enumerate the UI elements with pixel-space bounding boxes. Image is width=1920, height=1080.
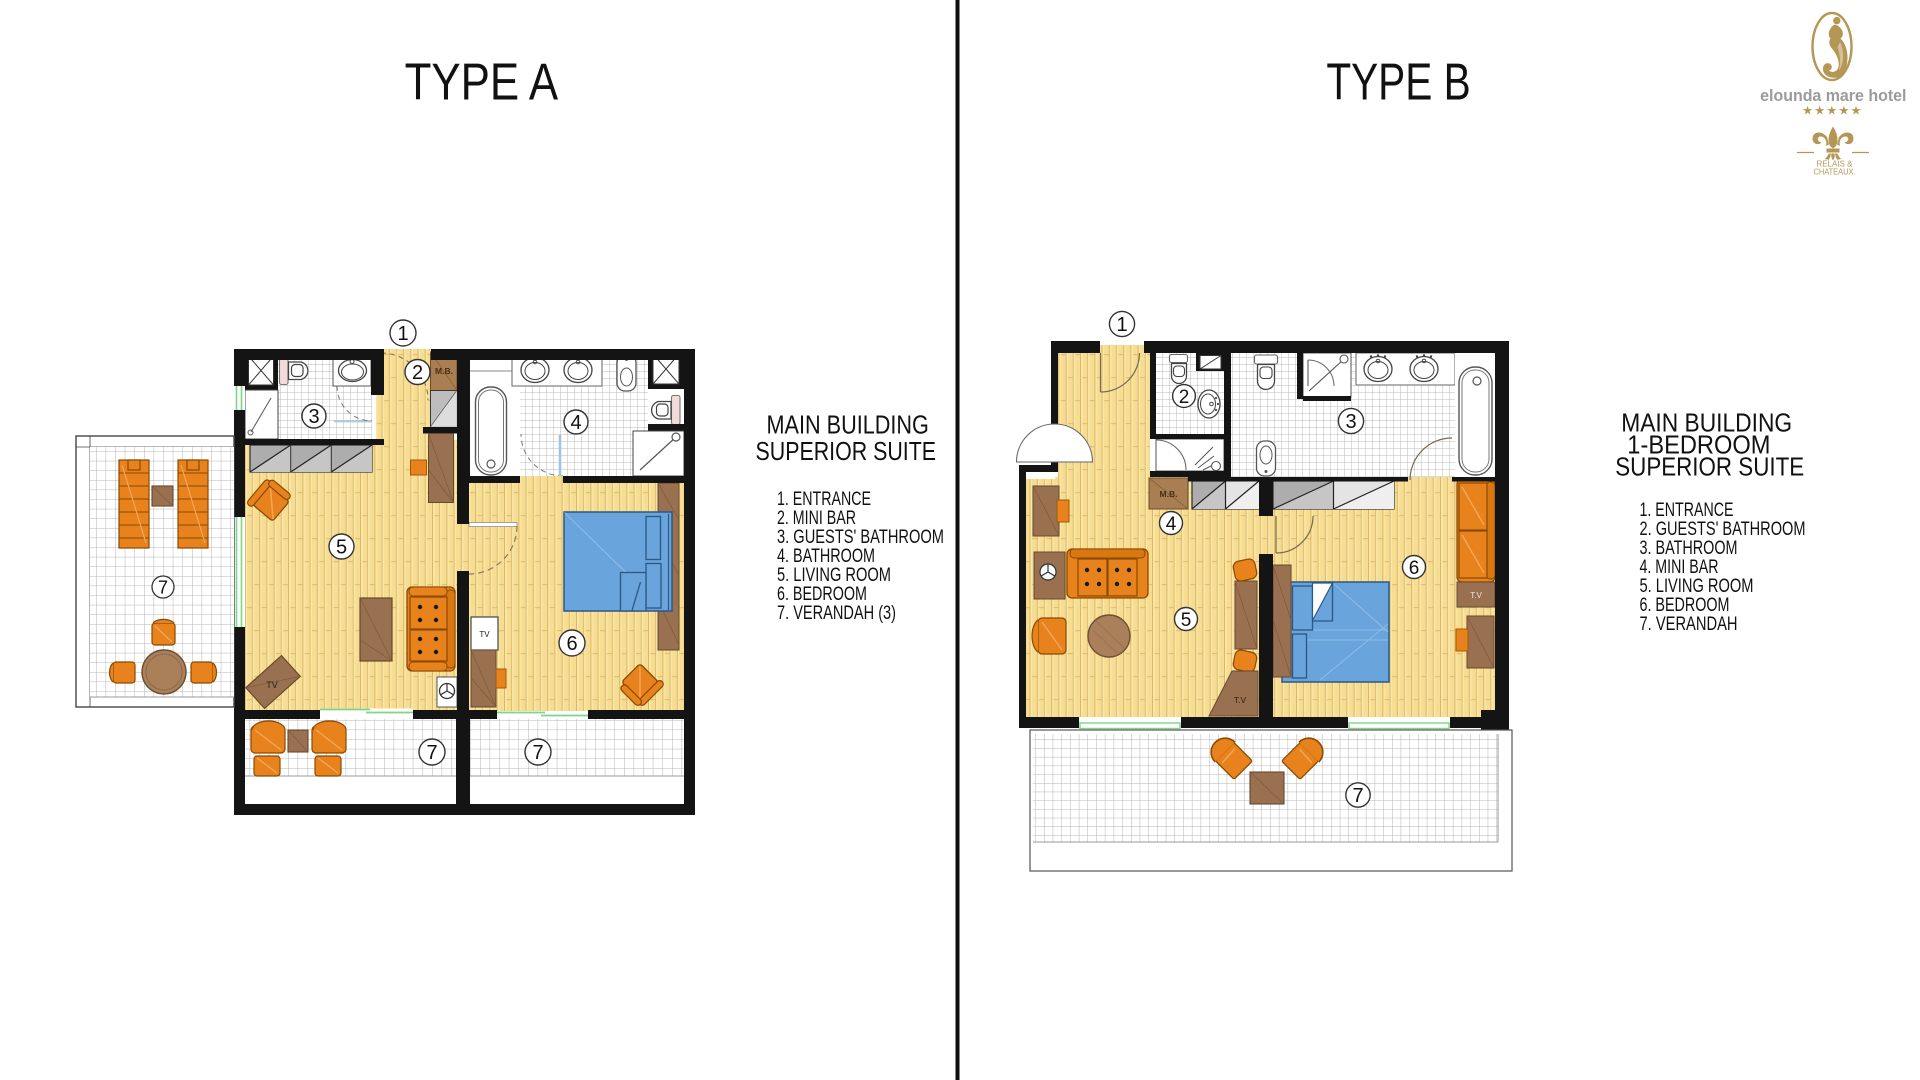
svg-text:3: 3 <box>308 406 319 428</box>
svg-text:4: 4 <box>570 412 581 434</box>
svg-text:1: 1 <box>397 323 408 345</box>
svg-text:7: 7 <box>426 742 437 764</box>
svg-text:TV: TV <box>479 630 490 639</box>
svg-text:7: 7 <box>532 742 543 764</box>
svg-text:4: 4 <box>1166 514 1177 535</box>
svg-text:elounda mare hotel: elounda mare hotel <box>1760 87 1906 105</box>
svg-text:7. VERANDAH (3): 7. VERANDAH (3) <box>777 602 896 624</box>
svg-text:7: 7 <box>158 578 168 598</box>
svg-text:5: 5 <box>336 537 347 559</box>
svg-text:2: 2 <box>1179 387 1190 408</box>
svg-text:7. VERANDAH: 7. VERANDAH <box>1640 613 1738 635</box>
svg-text:SUPERIOR SUITE: SUPERIOR SUITE <box>1615 452 1804 482</box>
svg-text:TV: TV <box>266 680 278 690</box>
svg-text:3: 3 <box>1345 411 1356 433</box>
svg-text:M.B.: M.B. <box>1160 489 1178 499</box>
svg-text:CHATEAUX.: CHATEAUX. <box>1814 168 1856 177</box>
svg-text:T.V: T.V <box>1234 695 1247 705</box>
svg-text:TYPE A: TYPE A <box>405 54 559 112</box>
svg-text:6: 6 <box>566 633 577 655</box>
svg-text:6: 6 <box>1409 558 1420 579</box>
svg-text:1: 1 <box>1116 314 1127 336</box>
svg-text:5: 5 <box>1181 610 1192 631</box>
svg-text:2: 2 <box>412 362 423 384</box>
svg-text:TYPE B: TYPE B <box>1326 54 1470 112</box>
svg-text:7: 7 <box>1352 785 1363 807</box>
svg-text:SUPERIOR SUITE: SUPERIOR SUITE <box>756 436 937 466</box>
svg-text:MAIN BUILDING: MAIN BUILDING <box>767 410 929 440</box>
svg-text:M.B.: M.B. <box>435 366 453 376</box>
svg-text:T.V: T.V <box>1470 591 1482 600</box>
